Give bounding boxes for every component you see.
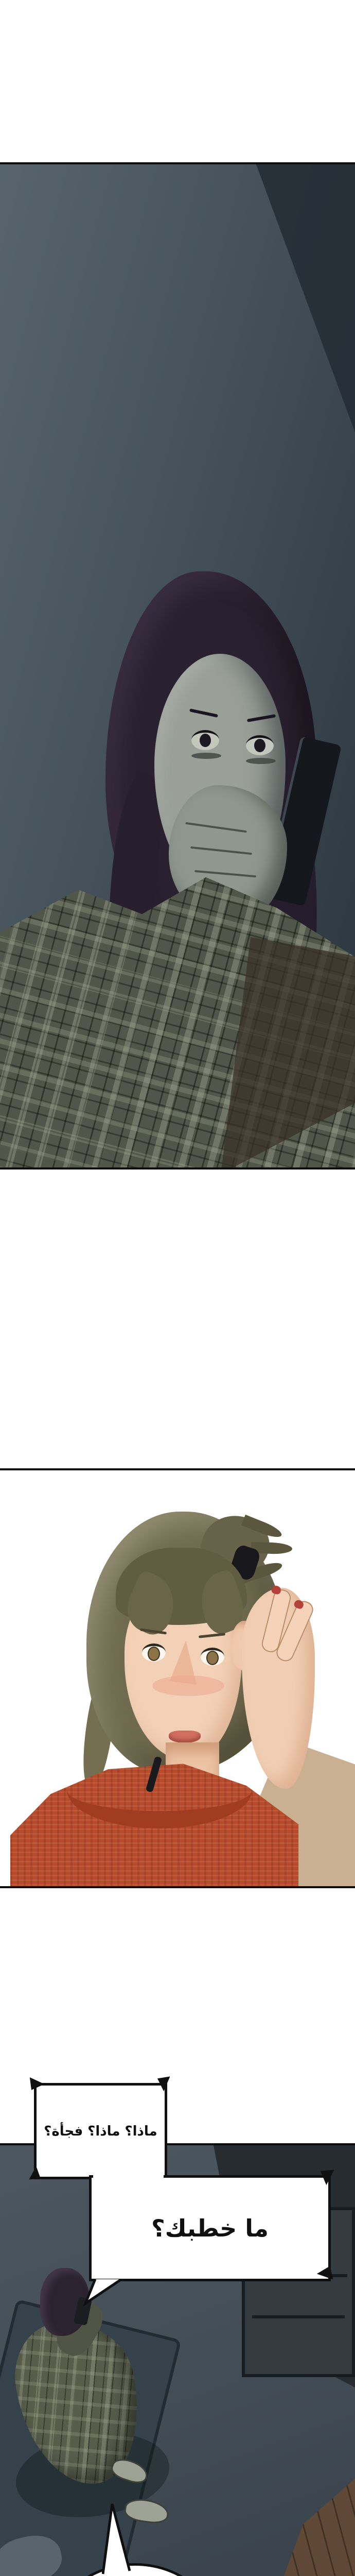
right-eye — [201, 1648, 224, 1666]
wood-floor — [247, 2454, 355, 2576]
bubble-merge-patch — [93, 2173, 164, 2182]
speech-bubble-shout-main: ما خطبك؟ — [89, 2175, 331, 2281]
left-eye — [142, 1643, 166, 1662]
pupil — [200, 734, 211, 747]
right-eye — [246, 735, 274, 755]
webtoon-page: ماذا؟ ماذا؟ فجأة؟ ما خطبك؟ لا شيء، إنني … — [0, 0, 355, 2576]
bubble-text: ماذا؟ ماذا؟ فجأة؟ — [44, 2124, 157, 2139]
eye-shadow — [246, 758, 276, 764]
mouth — [169, 1731, 201, 1743]
bubble-tail — [81, 2279, 122, 2308]
table-line — [252, 2315, 345, 2318]
blush — [152, 1675, 224, 1696]
bubble-text: ما خطبك؟ — [151, 2214, 269, 2242]
eye-shadow — [191, 753, 221, 759]
left-eye — [191, 730, 219, 750]
panel-brown-hair-listening — [0, 1468, 355, 1888]
panel-night-phone-call — [0, 162, 355, 1170]
pupil — [254, 739, 265, 752]
speech-bubble-shout-top: ماذا؟ ماذا؟ فجأة؟ — [34, 2083, 167, 2179]
iris — [148, 1647, 160, 1661]
iris — [206, 1651, 219, 1665]
bubble-tail — [102, 2503, 134, 2575]
wall-shadow — [196, 164, 355, 432]
